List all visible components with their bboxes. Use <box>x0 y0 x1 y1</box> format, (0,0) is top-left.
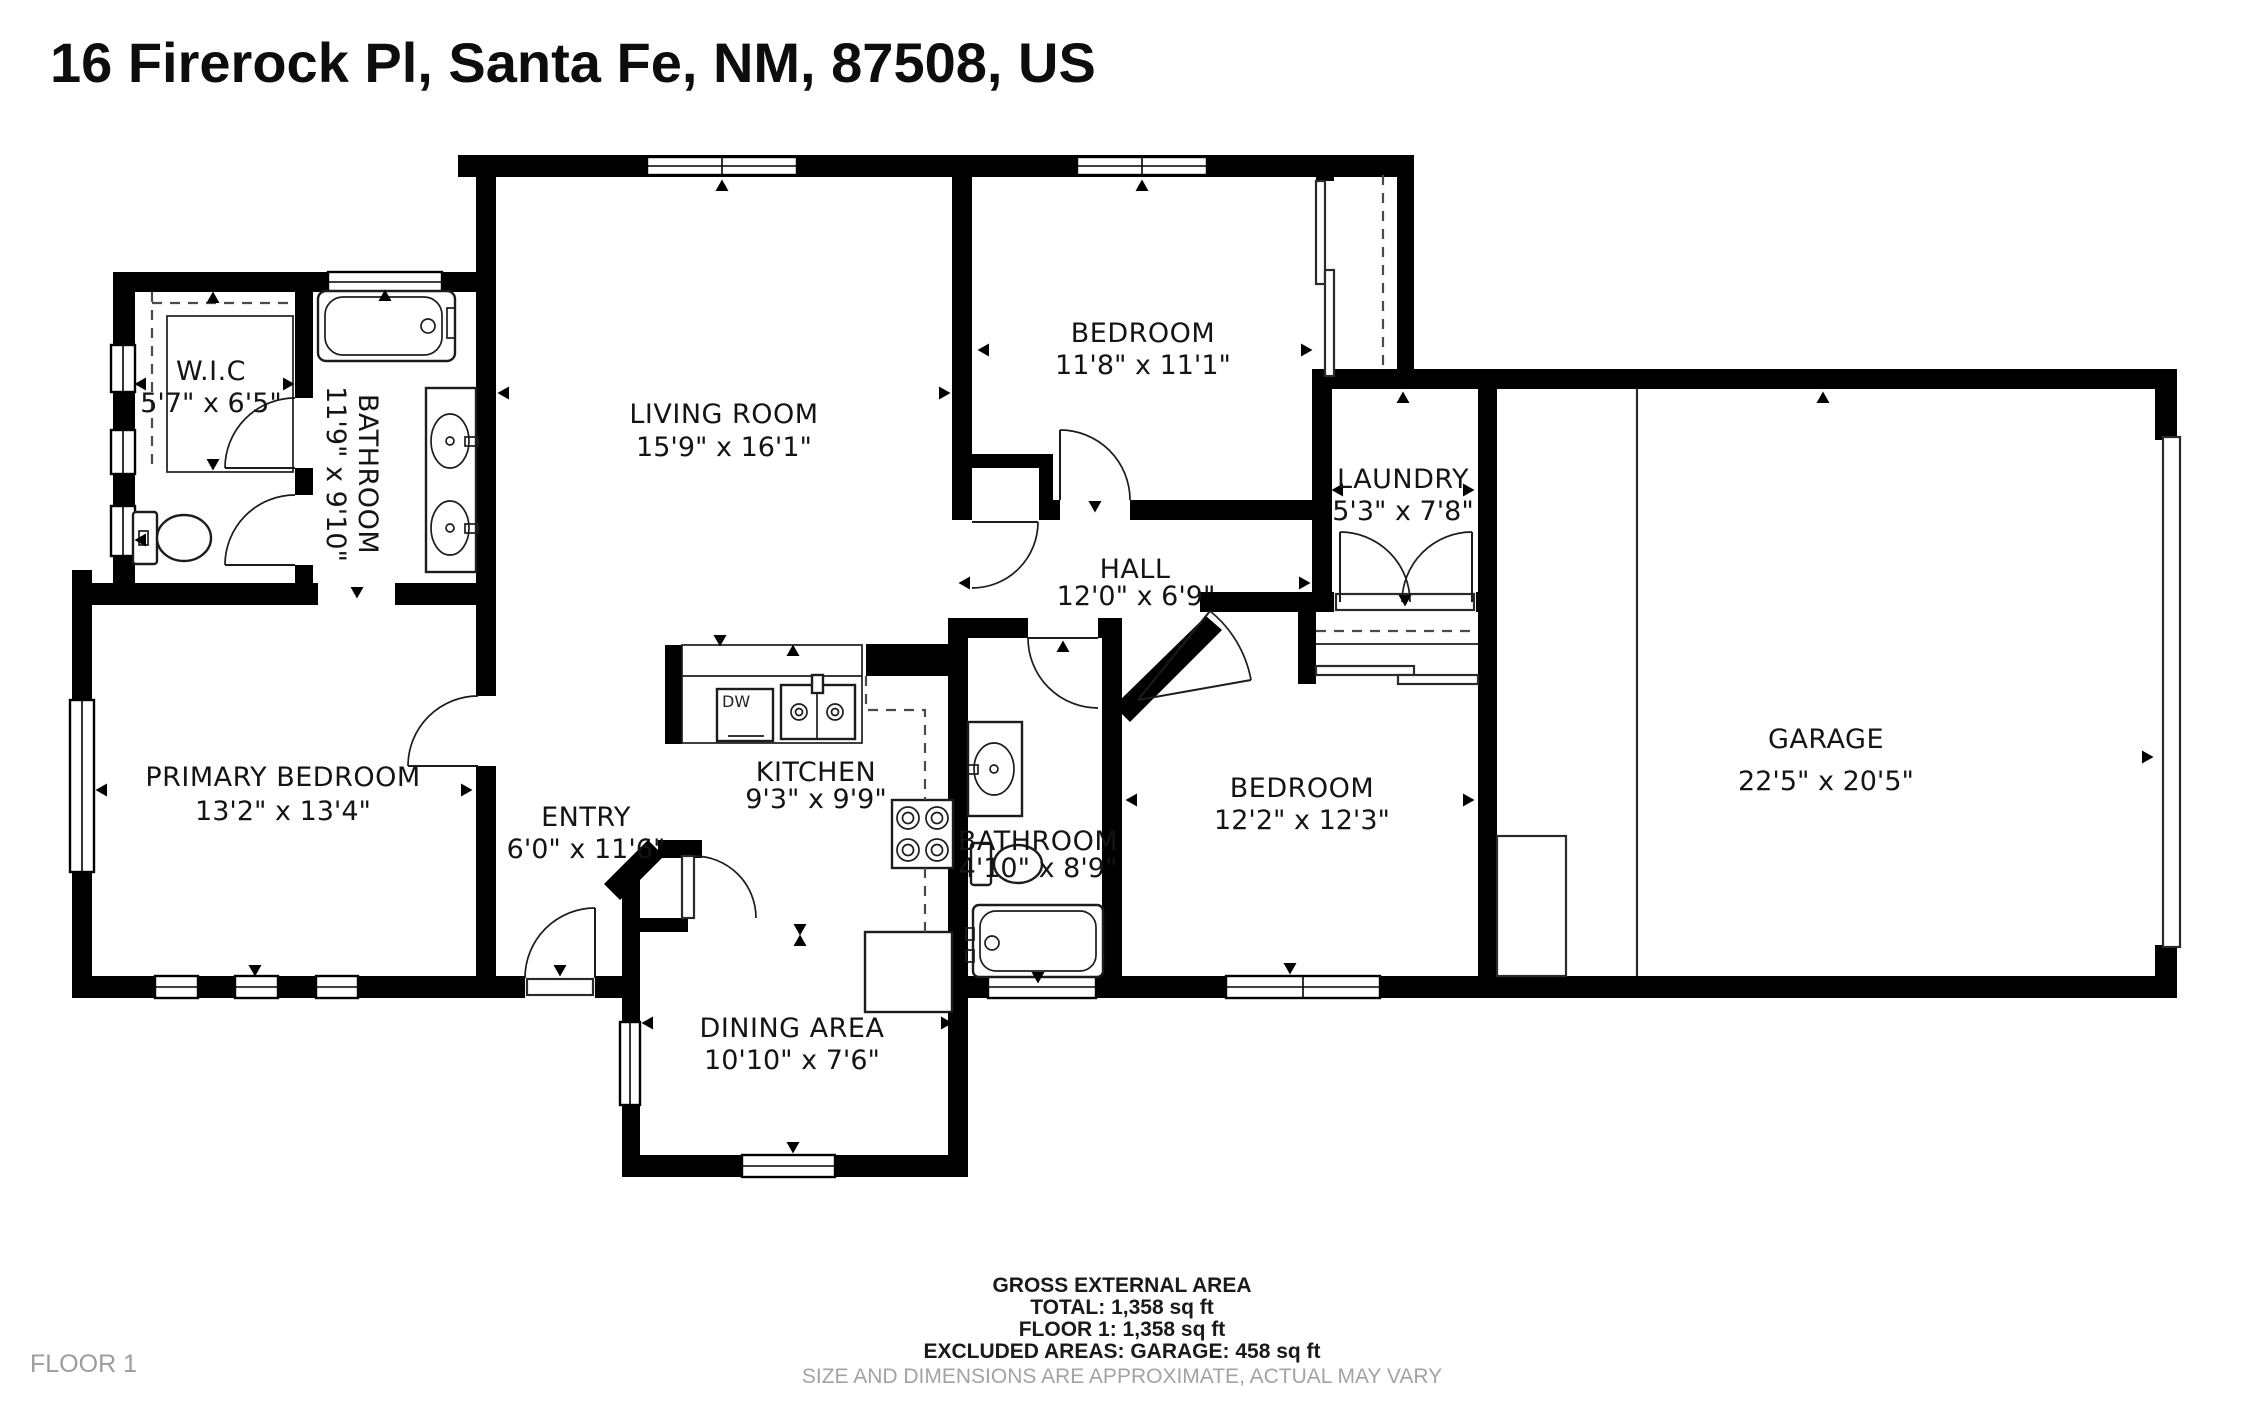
room-label-bathroom1-group: BATHROOM 11'9" x 9'10" <box>320 386 383 562</box>
room-label-bathroom1: BATHROOM <box>352 394 383 554</box>
vanity-double-sink-fixture <box>426 388 478 572</box>
closet-bedroom2 <box>1316 631 1478 684</box>
room-dims-bedroom2: 12'2" x 12'3" <box>1214 805 1390 836</box>
room-label-living: LIVING ROOM <box>629 399 818 430</box>
floor1-area-line: FLOOR 1: 1,358 sq ft <box>1019 1318 1226 1341</box>
garage-door <box>2163 437 2180 947</box>
kitchen-sink-fixture <box>781 675 855 739</box>
window-primary-bottom-2 <box>235 976 278 998</box>
room-label-primary: PRIMARY BEDROOM <box>145 762 420 793</box>
floor-plan-canvas: 16 Firerock Pl, Santa Fe, NM, 87508, US <box>0 0 2245 1402</box>
door-primary-bedroom <box>408 696 478 766</box>
window-living-top <box>647 157 797 175</box>
window-bathroom2-bottom <box>988 976 1096 998</box>
window-primary-left <box>70 700 94 872</box>
door-front-entry <box>525 908 595 995</box>
door-bedroom1 <box>1060 430 1130 500</box>
excluded-area-line: EXCLUDED AREAS: GARAGE: 458 sq ft <box>923 1340 1320 1363</box>
window-bedroom2-bottom <box>1226 976 1380 998</box>
room-dims-bathroom1: 11'9" x 9'10" <box>320 386 351 562</box>
vanity-sink-fixture-hallbath <box>968 722 1022 816</box>
refrigerator-fixture <box>865 932 952 1012</box>
window-wic-left-2 <box>111 430 135 474</box>
room-dims-laundry: 5'3" x 7'8" <box>1332 496 1474 527</box>
room-dims-entry: 6'0" x 11'6" <box>507 834 666 865</box>
room-label-laundry: LAUNDRY <box>1337 464 1469 495</box>
room-label-dining: DINING AREA <box>700 1013 885 1044</box>
room-dims-primary: 13'2" x 13'4" <box>195 796 371 827</box>
floor-label: FLOOR 1 <box>30 1350 137 1378</box>
bathtub-fixture-hallbath <box>966 905 1103 977</box>
room-dims-kitchen: 9'3" x 9'9" <box>745 784 887 815</box>
window-dining-bottom <box>742 1155 835 1177</box>
door-toilet-room <box>225 495 295 565</box>
closet-bedroom1 <box>1316 175 1383 376</box>
room-dims-hall: 12'0" x 6'9" <box>1057 581 1216 612</box>
window-dining-left <box>620 1022 640 1105</box>
window-primary-bottom-1 <box>155 976 198 998</box>
room-label-bedroom1: BEDROOM <box>1071 318 1215 349</box>
room-label-wic: W.I.C <box>176 356 246 387</box>
disclaimer-line: SIZE AND DIMENSIONS ARE APPROXIMATE, ACT… <box>802 1365 1442 1388</box>
door-hall-closet <box>972 522 1038 588</box>
room-dims-dining: 10'10" x 7'6" <box>704 1045 880 1076</box>
total-area-line: TOTAL: 1,358 sq ft <box>1030 1296 1214 1319</box>
window-wic-left-1 <box>111 345 135 392</box>
bathtub-fixture-primary <box>318 291 455 361</box>
area-summary: GROSS EXTERNAL AREA TOTAL: 1,358 sq ft F… <box>802 1274 1442 1388</box>
room-dims-bathroom2: 4'10" x 8'9" <box>959 853 1118 884</box>
room-label-bedroom2: BEDROOM <box>1230 773 1374 804</box>
gross-area-heading: GROSS EXTERNAL AREA <box>992 1274 1251 1297</box>
room-dims-living: 15'9" x 16'1" <box>636 432 812 463</box>
dishwasher-fixture: DW <box>717 689 773 741</box>
garage-equipment <box>1497 836 1566 976</box>
room-dims-bedroom1: 11'8" x 11'1" <box>1055 350 1231 381</box>
window-primary-bottom-3 <box>316 976 358 998</box>
room-label-garage: GARAGE <box>1768 724 1884 755</box>
door-dining <box>682 856 756 918</box>
room-dims-garage: 22'5" x 20'5" <box>1738 766 1914 797</box>
stove-fixture <box>892 800 953 868</box>
address-title: 16 Firerock Pl, Santa Fe, NM, 87508, US <box>50 31 1096 94</box>
window-bathroom1-top <box>328 272 442 292</box>
window-toilet-left <box>111 506 135 556</box>
floor-plan-page: { "title": "16 Firerock Pl, Santa Fe, NM… <box>0 0 2245 1402</box>
room-label-entry: ENTRY <box>541 802 631 833</box>
window-bedroom1-top <box>1077 157 1207 175</box>
room-dims-wic: 5'7" x 6'5" <box>140 388 282 419</box>
dishwasher-label: DW <box>722 692 750 711</box>
